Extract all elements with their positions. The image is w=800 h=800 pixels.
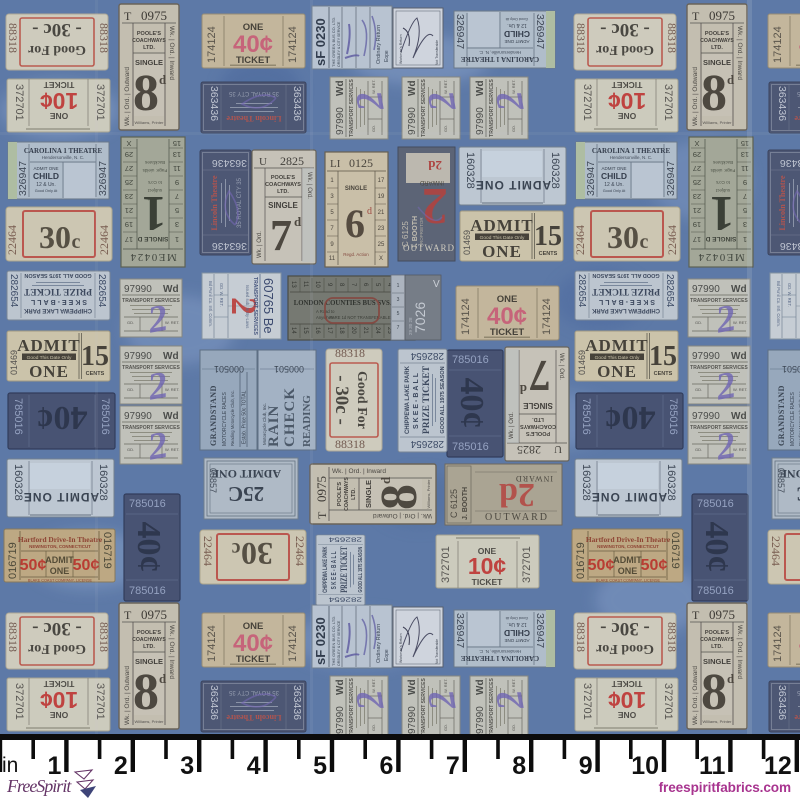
svg-text:2: 2 xyxy=(114,752,128,780)
svg-text:FreeSpirit: FreeSpirit xyxy=(6,776,72,796)
svg-text:4: 4 xyxy=(247,752,261,780)
svg-text:3: 3 xyxy=(180,752,194,780)
svg-text:5: 5 xyxy=(313,752,327,780)
svg-text:7: 7 xyxy=(446,752,460,780)
svg-text:in: in xyxy=(2,754,18,777)
svg-text:8: 8 xyxy=(512,752,526,780)
svg-text:10: 10 xyxy=(631,752,659,780)
svg-text:9: 9 xyxy=(579,752,593,780)
svg-text:12: 12 xyxy=(764,752,792,780)
svg-text:freespiritfabrics.com: freespiritfabrics.com xyxy=(659,780,791,795)
svg-text:6: 6 xyxy=(379,752,393,780)
svg-text:11: 11 xyxy=(699,752,726,780)
